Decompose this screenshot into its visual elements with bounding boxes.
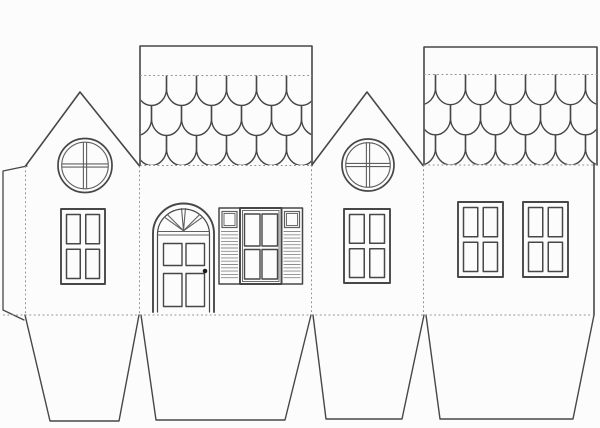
papercraft-house-template-sheet — [0, 0, 600, 428]
doorknob — [203, 269, 208, 274]
house-template-drawing — [0, 0, 600, 428]
